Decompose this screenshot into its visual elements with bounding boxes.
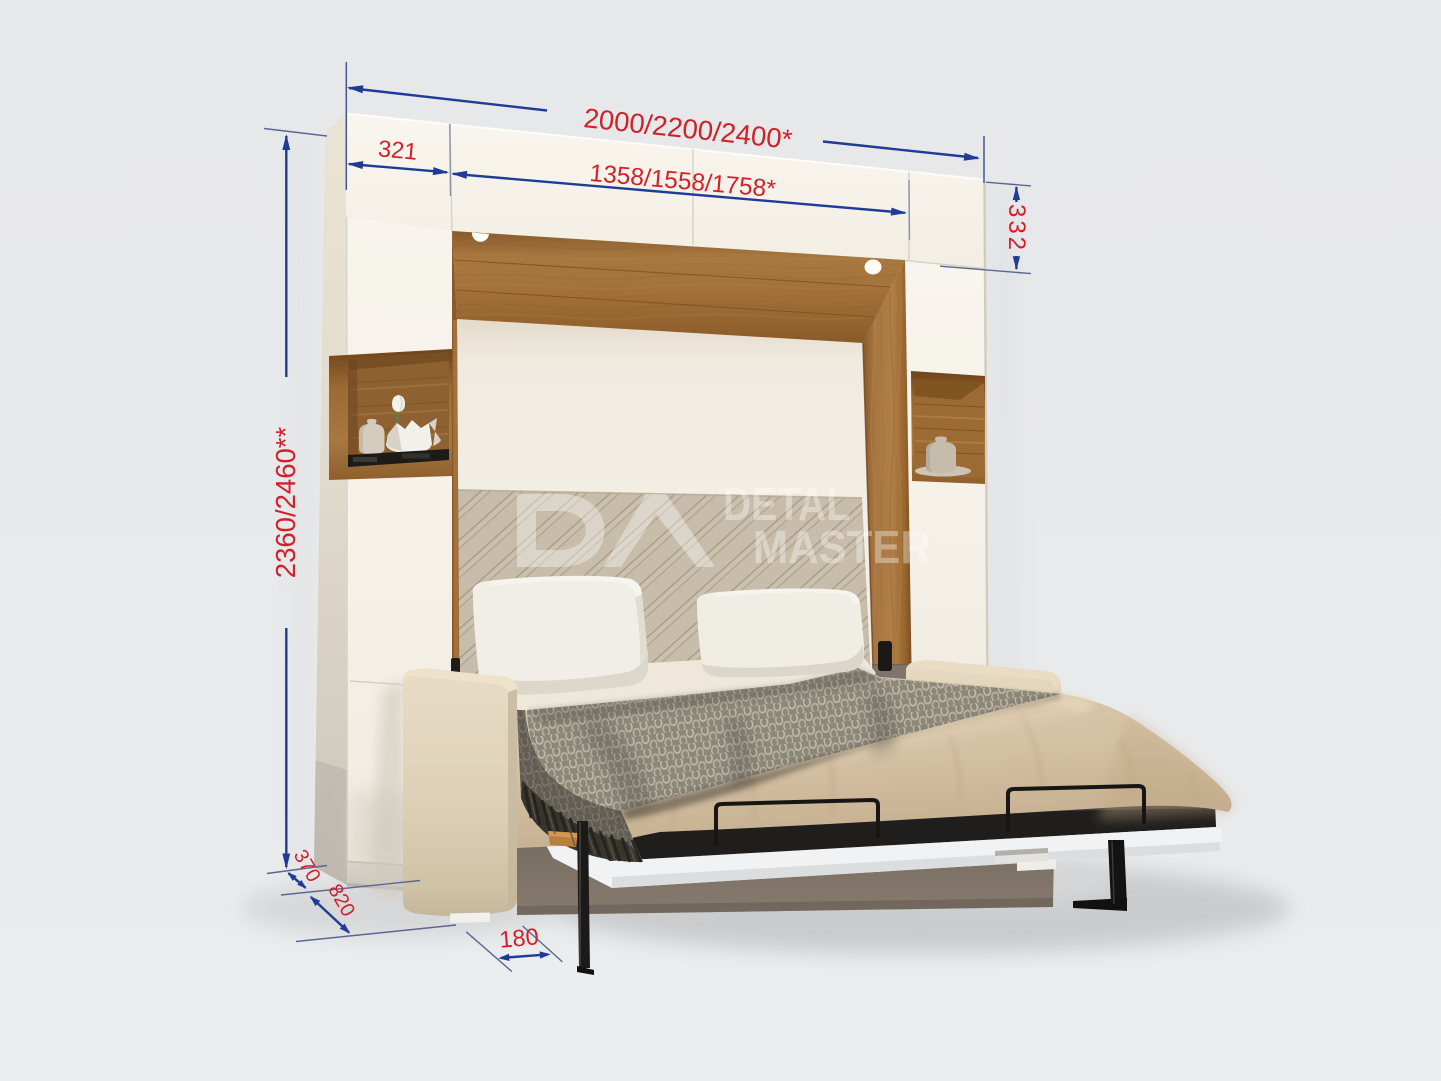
- svg-text:2360/2460**: 2360/2460**: [270, 427, 301, 579]
- svg-text:MASTER: MASTER: [753, 521, 931, 573]
- svg-text:180: 180: [498, 923, 539, 952]
- svg-text:321: 321: [377, 135, 418, 164]
- svg-text:332: 332: [1003, 204, 1030, 253]
